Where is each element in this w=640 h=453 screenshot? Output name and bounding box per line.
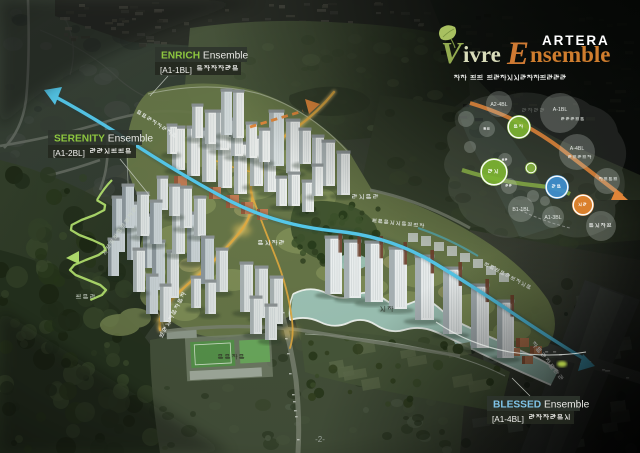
svg-text:[A1-1BL]: [A1-1BL] <box>160 66 192 75</box>
svg-text:A-1BL: A-1BL <box>553 107 568 113</box>
svg-text:[A1-2BL]: [A1-2BL] <box>53 149 85 158</box>
svg-text:SERENITY Ensemble: SERENITY Ensemble <box>54 134 153 145</box>
svg-text:B1-1BL: B1-1BL <box>512 207 529 213</box>
svg-text:A-4BL: A-4BL <box>570 146 585 152</box>
svg-text:[A1-4BL]: [A1-4BL] <box>492 415 524 424</box>
svg-text:V: V <box>441 35 464 70</box>
svg-text:E: E <box>506 36 529 72</box>
svg-text:-2-: -2- <box>315 435 325 444</box>
svg-text:ENRICH Ensemble: ENRICH Ensemble <box>161 51 249 62</box>
svg-text:nsemble: nsemble <box>530 42 611 67</box>
svg-text:A2-4BL: A2-4BL <box>490 102 507 108</box>
svg-text:BLESSED Ensemble: BLESSED Ensemble <box>493 400 590 411</box>
svg-text:A1-3BL: A1-3BL <box>544 215 561 221</box>
svg-text:ivre: ivre <box>463 42 501 67</box>
